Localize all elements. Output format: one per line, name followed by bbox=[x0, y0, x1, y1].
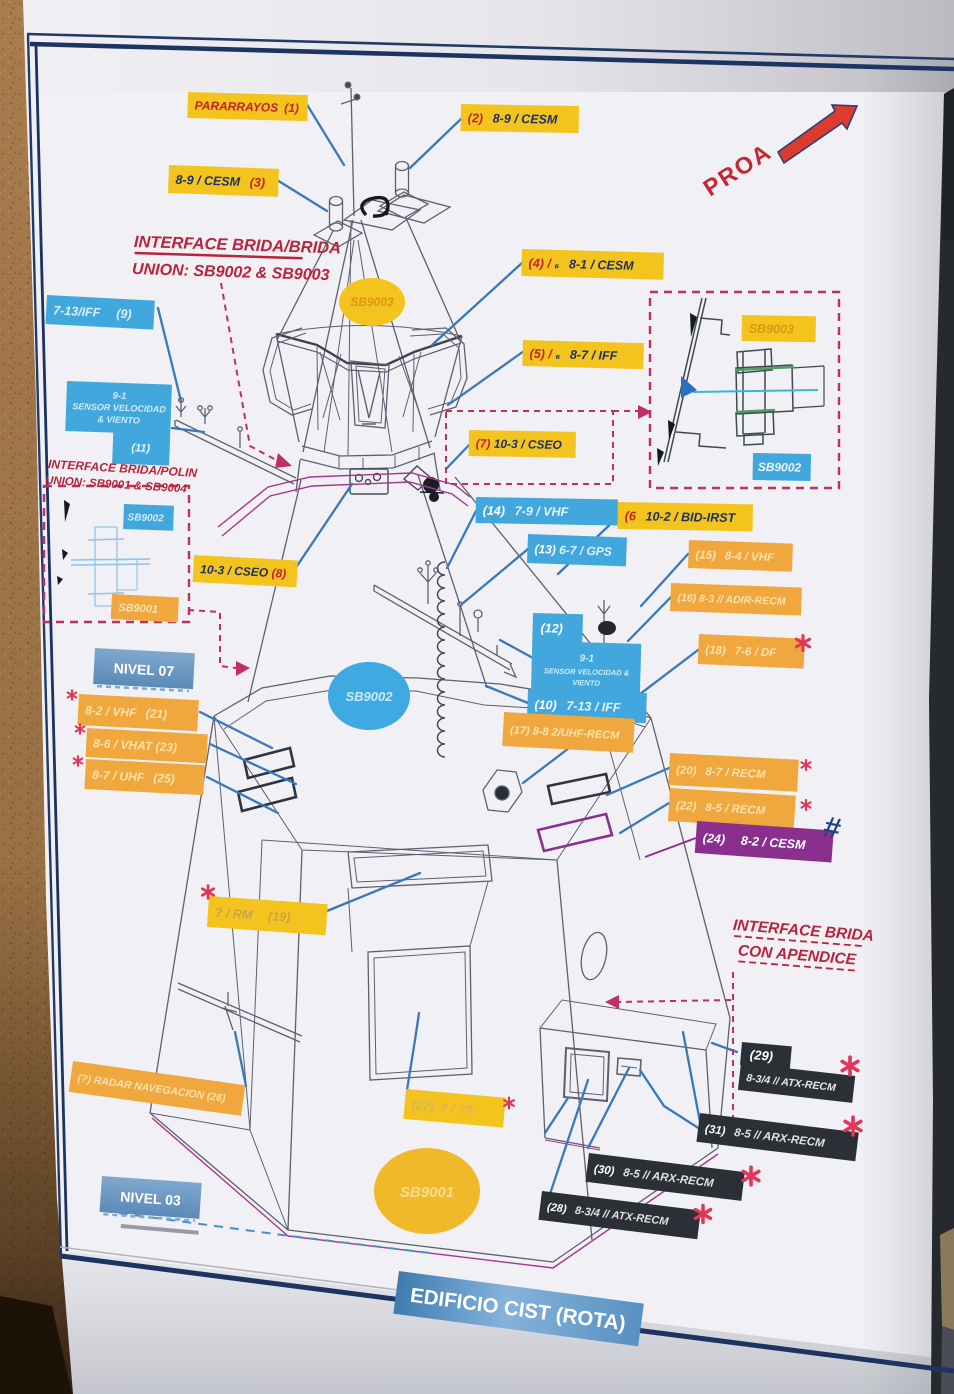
svg-text:SB9002: SB9002 bbox=[127, 512, 164, 524]
svg-text:SB9002: SB9002 bbox=[346, 689, 394, 704]
svg-text:9-1: 9-1 bbox=[112, 391, 126, 402]
svg-text:PARARRAYOS (1): PARARRAYOS (1) bbox=[194, 98, 299, 115]
svg-text:(14) 7-9 / VHF: (14) 7-9 / VHF bbox=[483, 504, 569, 519]
svg-text:SB9003: SB9003 bbox=[749, 322, 794, 337]
svg-text:(5) / ₆ 8-7 / IFF: (5) / ₆ 8-7 / IFF bbox=[529, 347, 617, 363]
svg-text:SB9002: SB9002 bbox=[758, 460, 802, 475]
svg-text:(4) / ₆ 8-1 / CESM: (4) / ₆ 8-1 / CESM bbox=[528, 256, 634, 273]
svg-text:SB9003: SB9003 bbox=[350, 295, 394, 309]
svg-text:(2) 8-9 / CESM: (2) 8-9 / CESM bbox=[468, 111, 558, 127]
svg-text:SB9001: SB9001 bbox=[118, 602, 158, 616]
svg-text:(11): (11) bbox=[131, 442, 150, 455]
svg-text:(13) 6-7 / GPS: (13) 6-7 / GPS bbox=[534, 542, 612, 559]
svg-text:(7) 10-3 / CSEO: (7) 10-3 / CSEO bbox=[476, 436, 563, 452]
svg-text:9-1: 9-1 bbox=[579, 653, 594, 664]
svg-text:(29): (29) bbox=[749, 1047, 773, 1064]
svg-text:VIENTO: VIENTO bbox=[572, 678, 600, 688]
svg-text:NIVEL 07: NIVEL 07 bbox=[113, 660, 174, 679]
svg-text:(12): (12) bbox=[540, 621, 563, 636]
svg-text:(6 10-2 / BID-IRST: (6 10-2 / BID-IRST bbox=[625, 509, 737, 525]
svg-text:& VIENTO: & VIENTO bbox=[97, 414, 140, 425]
svg-text:SB9001: SB9001 bbox=[400, 1184, 454, 1201]
